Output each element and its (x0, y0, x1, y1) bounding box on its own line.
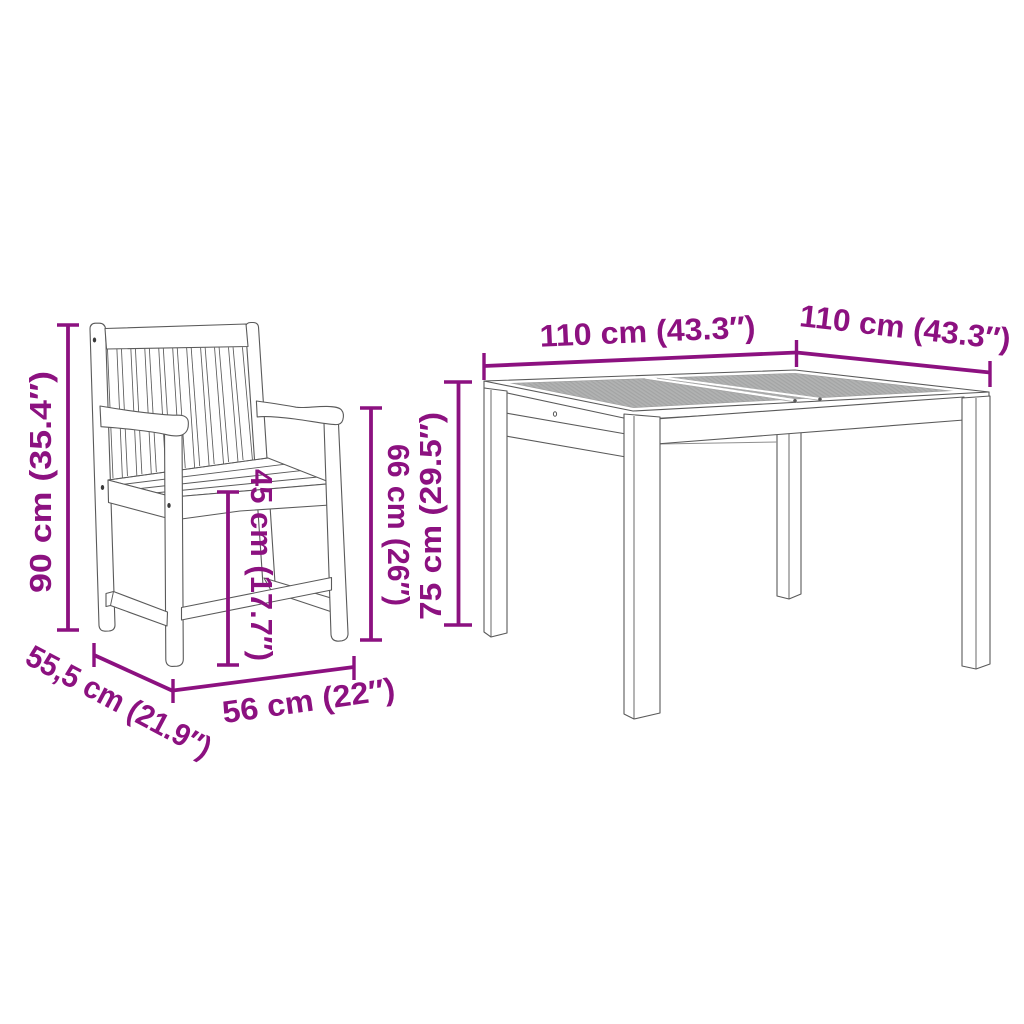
svg-text:90 cm (35.4″): 90 cm (35.4″) (23, 371, 58, 593)
svg-text:110 cm (43.3″): 110 cm (43.3″) (798, 298, 1013, 357)
svg-text:75 cm (29.5″): 75 cm (29.5″) (413, 412, 448, 620)
svg-text:55,5 cm (21.9″): 55,5 cm (21.9″) (20, 638, 217, 765)
svg-text:110 cm (43.3″): 110 cm (43.3″) (539, 309, 756, 353)
svg-text:45 cm (17.7″): 45 cm (17.7″) (244, 469, 279, 661)
svg-text:66 cm (26″): 66 cm (26″) (381, 444, 416, 606)
